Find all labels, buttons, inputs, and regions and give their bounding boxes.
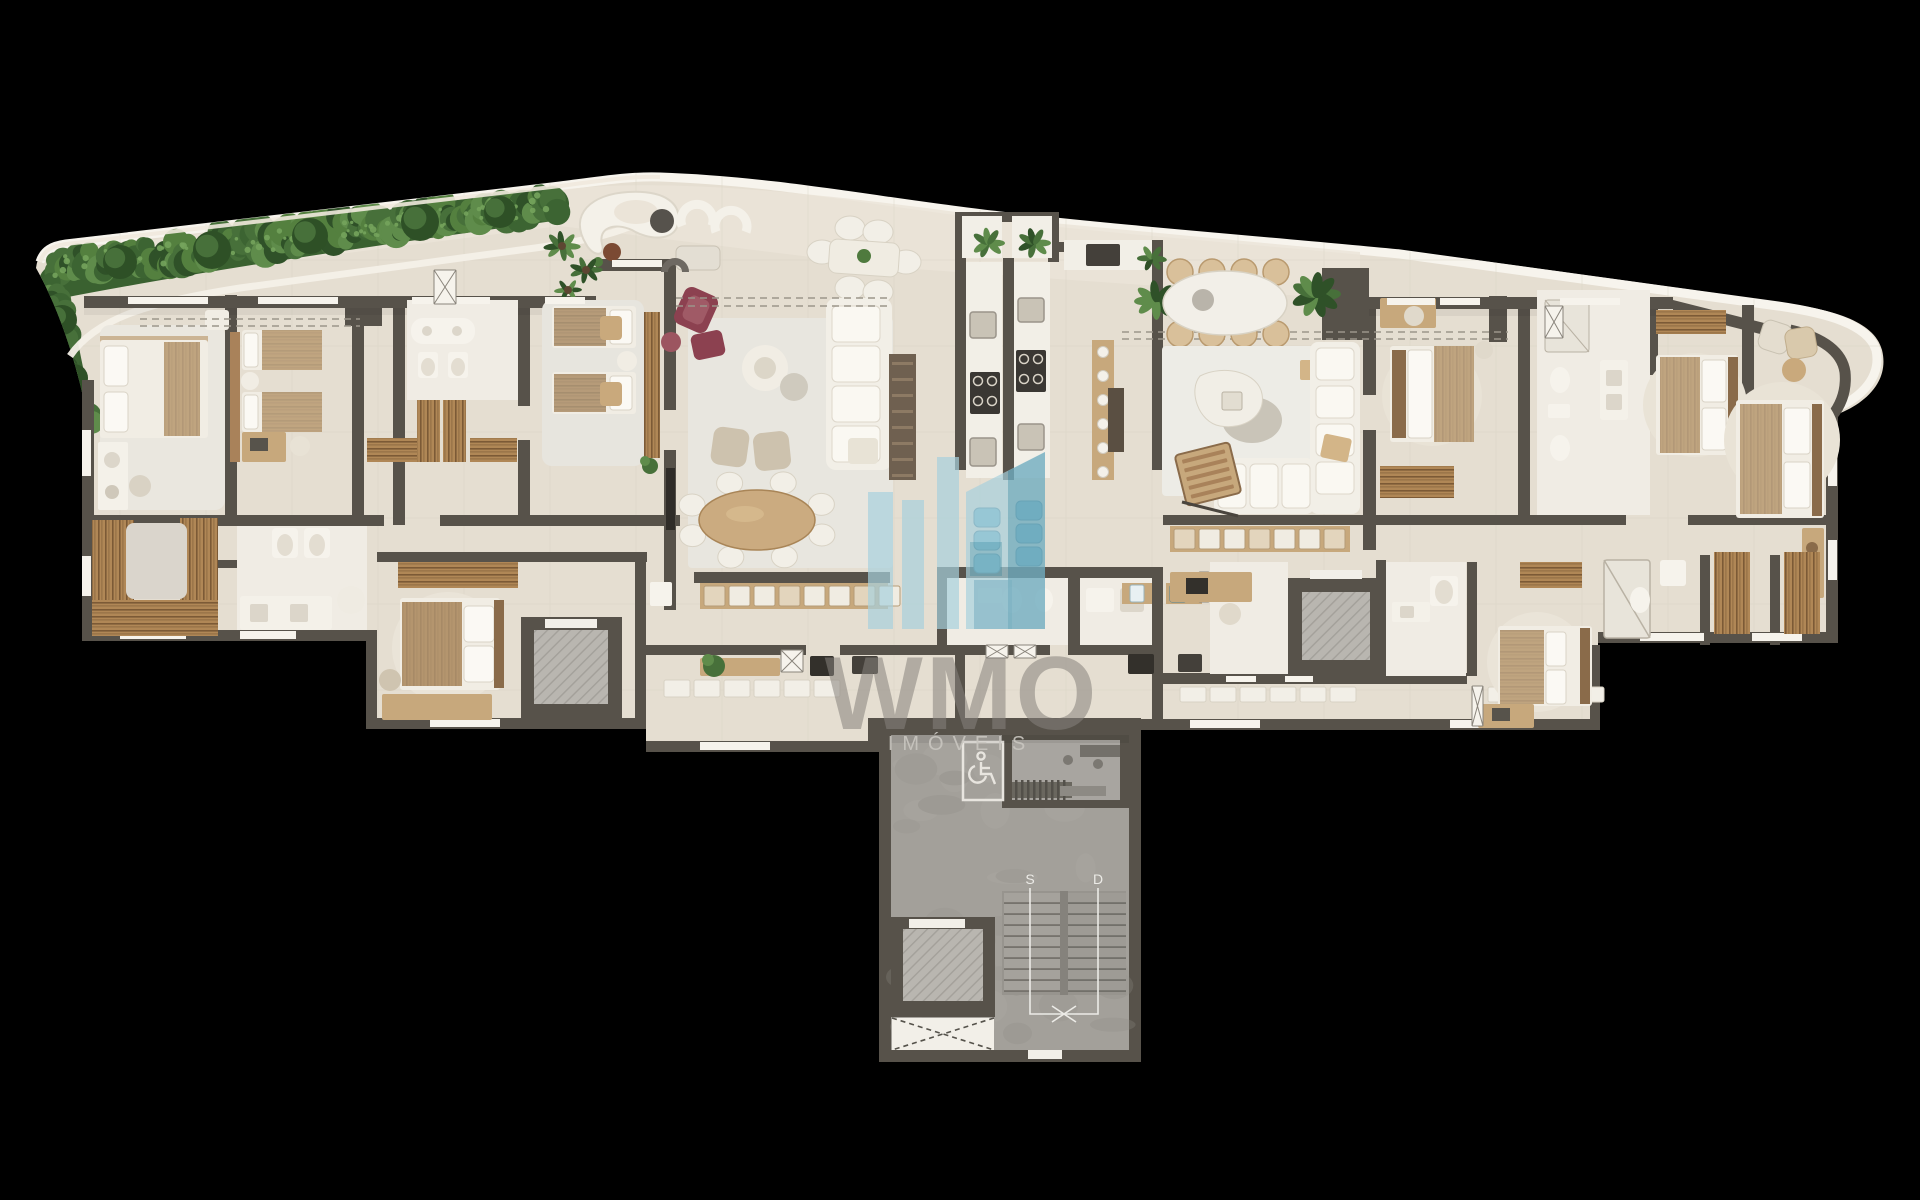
svg-text:D: D xyxy=(1093,871,1103,887)
svg-text:IMÓVEIS: IMÓVEIS xyxy=(888,732,1034,755)
svg-text:S: S xyxy=(1025,871,1034,887)
